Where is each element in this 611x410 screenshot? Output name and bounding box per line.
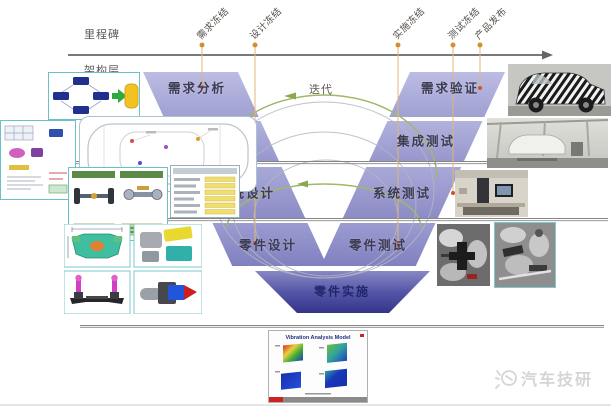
phase-part-test: 零件测试 — [349, 235, 407, 254]
arrow-icon — [112, 93, 118, 99]
watermark-text: 汽车技研 — [521, 366, 593, 390]
assembly-line-photo — [487, 118, 608, 168]
phase-requirements-analysis: 需求分析 — [168, 78, 226, 97]
iteration-label: 迭代 — [309, 81, 333, 97]
engine-parts-graphic — [495, 223, 555, 287]
architecture-panel-thumbnail — [0, 120, 76, 200]
vibration-panel-title: Vibration Analysis Model — [285, 335, 351, 341]
phase-part-design: 零件设计 — [239, 235, 297, 254]
phase-part-implementation: 零件实施 — [314, 283, 370, 300]
milestone-row-label: 里程碑 — [84, 26, 120, 42]
vibration-analysis-graphic: Vibration Analysis Model — [269, 331, 367, 402]
arrowhead-icon — [542, 51, 553, 60]
engine-bay-graphic — [437, 224, 490, 286]
spec-table-graphic — [171, 166, 239, 217]
assembly-line-graphic — [487, 118, 608, 168]
arrowhead-icon — [297, 181, 308, 188]
phase-requirements-verification: 需求验证 — [421, 78, 479, 97]
cad-parts-grid-thumbnail — [64, 224, 202, 314]
vibration-analysis-panel: Vibration Analysis Model — [268, 330, 368, 403]
cad-parts-grid-graphic — [64, 224, 202, 314]
spec-table-thumbnail — [170, 165, 240, 218]
bottom-divider — [0, 404, 611, 406]
architecture-panel-graphic — [1, 121, 75, 199]
engine-bay-photo-1 — [437, 224, 490, 286]
test-bench-photo — [455, 170, 528, 217]
requirements-diagram-graphic — [49, 73, 139, 119]
engine-bay-photo-2 — [494, 222, 556, 288]
phase-integration-test: 集成测试 — [397, 131, 455, 150]
requirements-diagram-thumbnail — [48, 72, 140, 120]
brand-logo-icon — [494, 366, 518, 390]
watermark: 汽车技研 — [494, 366, 593, 390]
camouflage-car-photo — [508, 64, 611, 116]
camouflage-car-graphic — [508, 64, 611, 116]
test-bench-graphic — [455, 170, 528, 217]
v-model-diagram: 里程碑 架构层 需求冻结 设计冻结 实施冻结 测试冻结 产品发布 需求分析 架构… — [0, 0, 611, 410]
phase-system-test: 系统测试 — [373, 183, 431, 202]
